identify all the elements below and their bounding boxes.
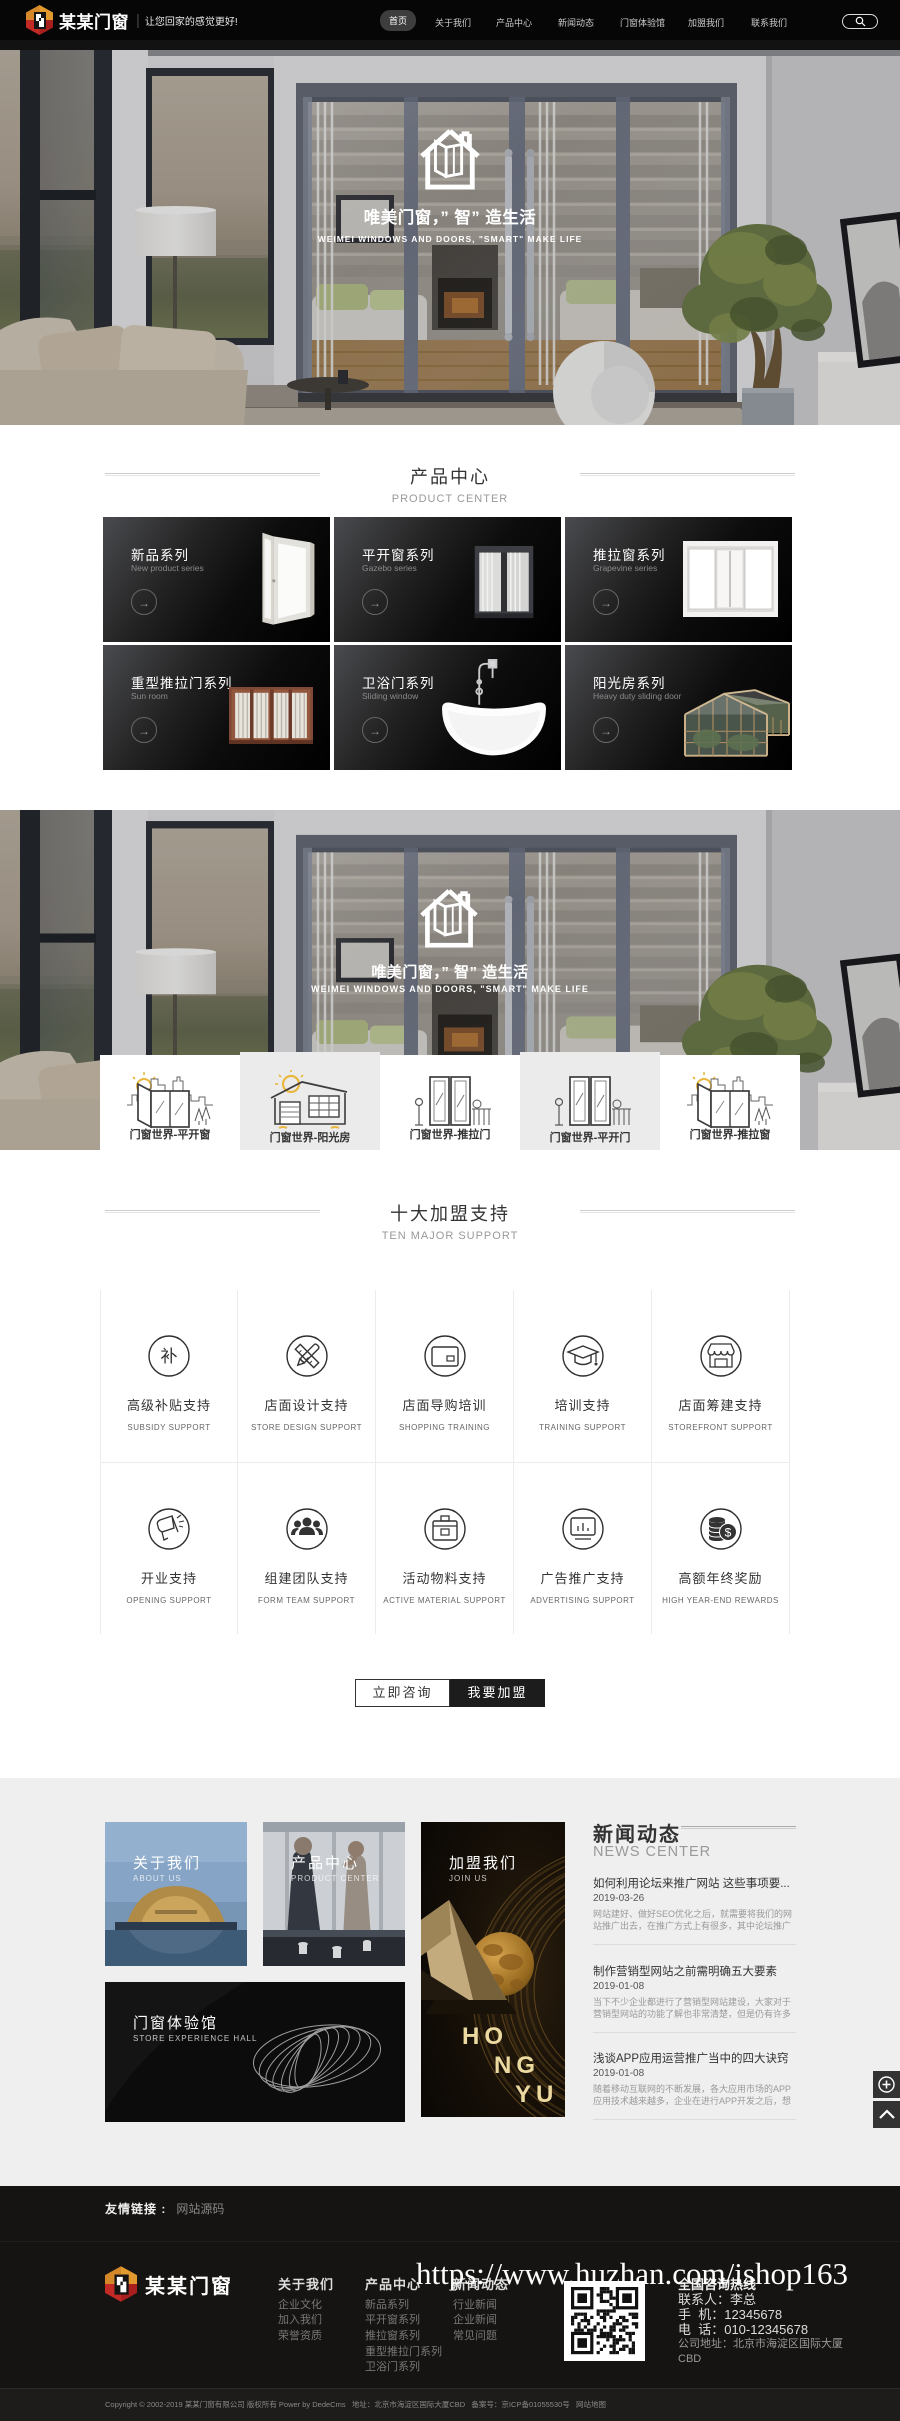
svg-text:补: 补 — [161, 1347, 178, 1366]
svg-text:$: $ — [724, 1526, 731, 1540]
